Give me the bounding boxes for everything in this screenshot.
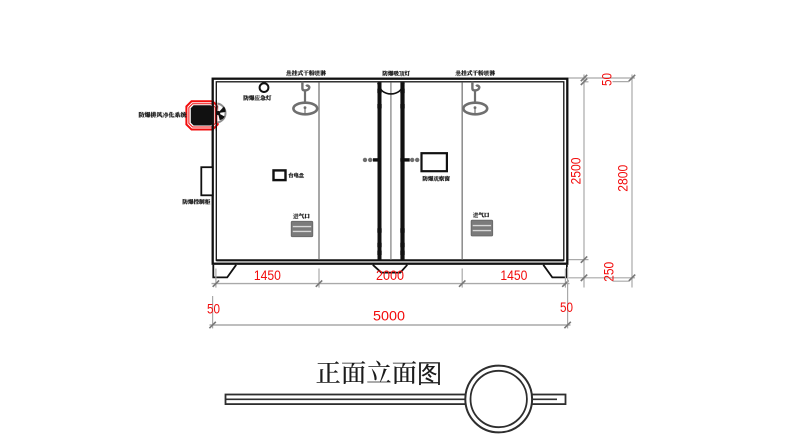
svg-text:50: 50 <box>207 301 220 316</box>
svg-text:2500: 2500 <box>569 157 584 184</box>
svg-text:2800: 2800 <box>616 164 631 191</box>
svg-text:1450: 1450 <box>254 268 281 283</box>
svg-text:50: 50 <box>600 73 615 86</box>
svg-text:5000: 5000 <box>373 309 405 324</box>
svg-text:2000: 2000 <box>376 268 404 283</box>
svg-text:250: 250 <box>602 261 617 281</box>
svg-text:1450: 1450 <box>500 268 527 283</box>
svg-text:50: 50 <box>560 300 573 315</box>
